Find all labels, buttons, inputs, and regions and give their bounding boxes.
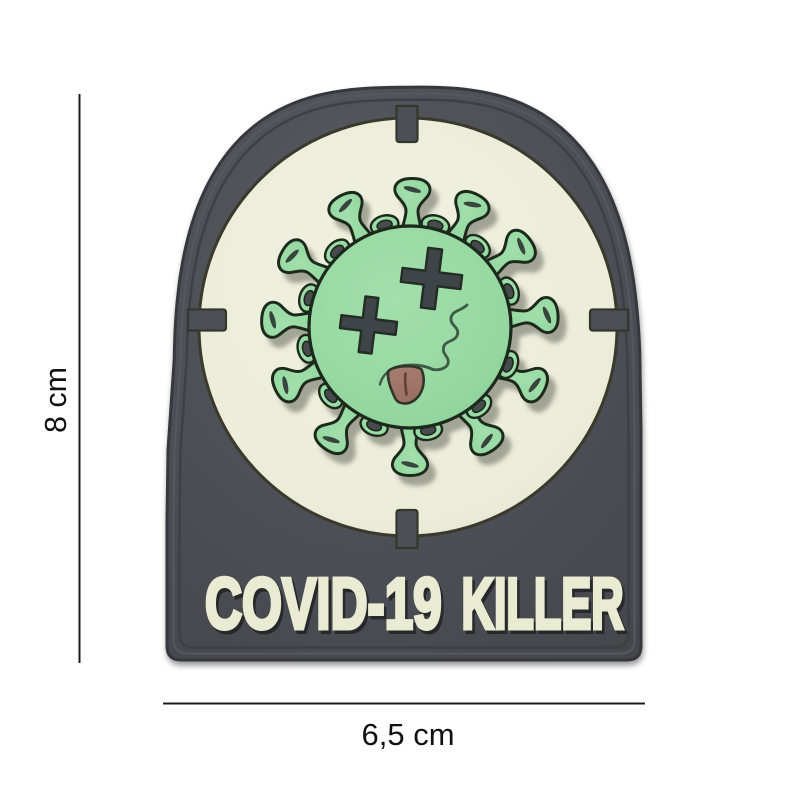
svg-text:8 cm: 8 cm	[39, 367, 73, 433]
svg-text:COVID-19: COVID-19	[205, 564, 442, 645]
svg-text:KILLER: KILLER	[462, 562, 624, 644]
svg-text:6,5 cm: 6,5 cm	[361, 717, 454, 752]
